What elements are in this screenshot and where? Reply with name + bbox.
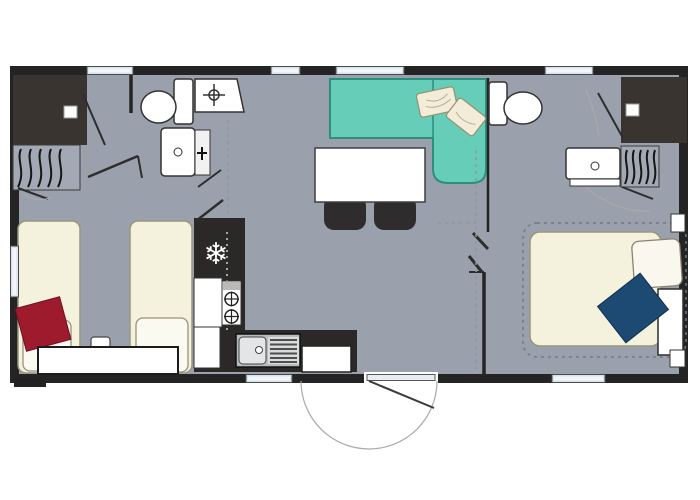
door-slab (367, 375, 435, 381)
wall-vent (670, 350, 685, 367)
window (87, 67, 133, 75)
shower-cubicle-left (13, 75, 87, 145)
kitchen-cabinet (194, 327, 220, 368)
shower-drain-icon (64, 106, 77, 118)
entry-step (14, 378, 46, 387)
basin-drain-icon (591, 162, 599, 170)
gas-hob (222, 281, 241, 325)
door-leaf (369, 381, 434, 408)
window (336, 67, 404, 75)
bedside-unit (658, 289, 683, 355)
toilet-bowl (504, 92, 542, 124)
toilet-bowl (141, 91, 176, 123)
window (545, 67, 593, 75)
hob-panel (223, 282, 240, 290)
basin-ledge (570, 179, 620, 186)
floor-plan-svg: ❄ (0, 0, 700, 500)
wall-vent (671, 214, 685, 232)
window (11, 246, 19, 297)
shower-drain-icon (626, 104, 639, 116)
door-swing-arc (301, 381, 437, 449)
washbasin (161, 128, 210, 176)
kitchen-sink (236, 334, 300, 367)
window (552, 375, 605, 383)
dining-table (315, 148, 425, 202)
foot-bench (38, 347, 178, 374)
floor-plan-page: ❄ (0, 0, 700, 500)
toilet-cistern (174, 79, 193, 124)
wardrobe-body (13, 145, 80, 190)
basin-drain-icon (174, 148, 182, 156)
shower-tray (195, 79, 244, 112)
sink-drain-icon (256, 347, 263, 354)
kitchen-cabinet (302, 346, 351, 372)
entrance-door (301, 372, 438, 449)
fridge-freezer (194, 278, 222, 327)
shower-cubicle-right (621, 77, 687, 143)
drainer-board (268, 337, 299, 364)
window (271, 67, 300, 75)
window (246, 375, 292, 383)
washbasin (566, 148, 622, 186)
freezer-icon: ❄ (203, 237, 228, 272)
